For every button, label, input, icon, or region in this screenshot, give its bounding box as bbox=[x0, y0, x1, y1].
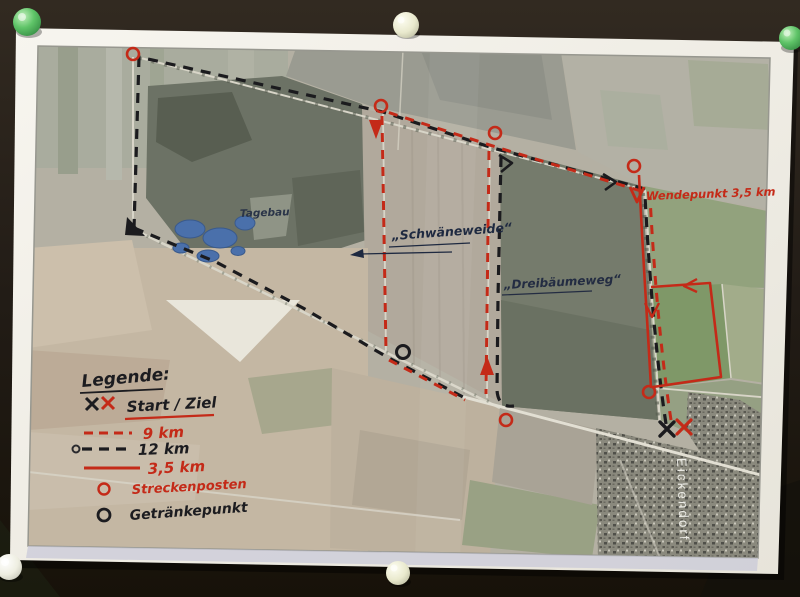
tagebau-label: Tagebau bbox=[240, 206, 291, 220]
legend-12km-label: 12 km bbox=[138, 439, 190, 459]
village-name-label: Eickendorf bbox=[674, 458, 692, 542]
photo-of-route-map: Tagebau „Schwäneweide“ „Dreibäumeweg“ We… bbox=[0, 0, 800, 597]
legend-35km-label: 3,5 km bbox=[147, 457, 205, 478]
pushpin-top-right bbox=[779, 26, 800, 53]
